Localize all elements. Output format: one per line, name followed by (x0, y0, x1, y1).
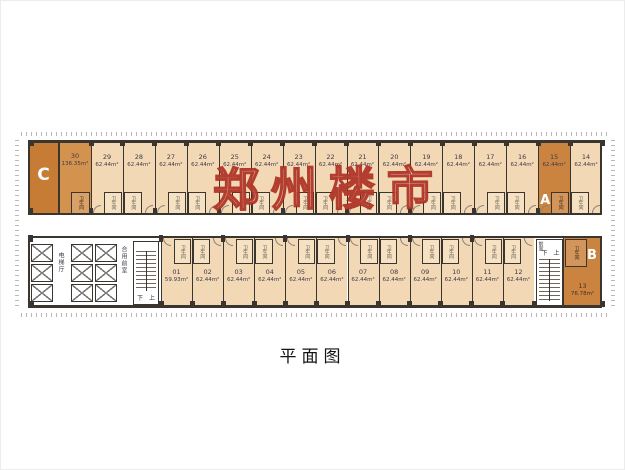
bathroom-label: 卫生间 (258, 196, 263, 210)
bathroom: 卫生间 (379, 192, 397, 214)
column-block (120, 140, 125, 146)
unit-area: 62.44m² (89, 162, 125, 168)
stair-divider (549, 259, 550, 301)
column-block (221, 235, 225, 242)
column-block (472, 208, 476, 215)
column-block (28, 208, 33, 215)
bathroom-label: 卫生间 (366, 196, 371, 210)
stair-up-label: 上 (551, 248, 562, 257)
bathroom-label: 卫生间 (180, 245, 185, 259)
column-block (28, 301, 34, 307)
unit-number: 03 (223, 268, 254, 276)
unit-number: 09 (410, 268, 441, 276)
dimension-ticks-bottom (21, 313, 609, 317)
bathroom-label: 卫生间 (130, 196, 135, 210)
unit-number: 01 (161, 268, 192, 276)
unit-number: 16 (506, 153, 538, 161)
column-block (152, 140, 157, 146)
unit-area: 62.44m² (377, 277, 412, 283)
unit-area: 62.44m² (408, 162, 444, 168)
bathroom: 卫生间 (317, 239, 334, 264)
column-block (221, 301, 226, 307)
unit-number: 25 (219, 153, 251, 161)
bathroom-label: 卫生间 (574, 246, 579, 260)
unit-area: 62.44m² (190, 277, 225, 283)
column-block (407, 301, 412, 307)
unit-area: 62.44m² (440, 162, 476, 168)
unit-area: 62.44m² (283, 277, 318, 283)
unit-area: 62.44m² (346, 277, 381, 283)
bathroom: 卫生间 (443, 192, 461, 214)
column-block (345, 301, 350, 307)
column-block (216, 140, 221, 146)
unit-number: 13 (563, 282, 602, 290)
unit-number: 08 (379, 268, 410, 276)
bathroom-label: 卫生间 (238, 196, 243, 210)
bathroom: 卫生间 (504, 239, 521, 264)
unit-number: 04 (254, 268, 285, 276)
stair-divider (146, 251, 147, 291)
elevator-hall-label: 电梯厅 (56, 252, 65, 292)
bathroom: 卫生间 (571, 192, 589, 214)
unit-area: 62.44m² (121, 162, 157, 168)
unit-number: 05 (285, 268, 316, 276)
bathroom-label: 卫生间 (261, 245, 266, 259)
bathroom: 卫生间 (380, 239, 397, 264)
bathroom-label: 卫生间 (578, 196, 583, 210)
column-block (28, 140, 34, 146)
unit-number: 29 (91, 153, 123, 161)
bathroom: 卫生间 (255, 239, 272, 264)
bathroom-label: 卫生间 (302, 196, 307, 210)
column-block (159, 301, 164, 307)
bathroom-label: 卫生间 (514, 196, 519, 210)
unit-letter: B (587, 248, 597, 263)
column-block (470, 235, 474, 242)
bathroom-label: 卫生间 (386, 196, 391, 210)
unit-area: 62.44m² (217, 162, 253, 168)
unit-number: 15 (538, 153, 570, 161)
floor-plan-page: C30136.35m²卫生间2962.44m²卫生间2862.44m²卫生间27… (0, 0, 625, 470)
unit-number: 07 (348, 268, 379, 276)
column-block (376, 301, 381, 307)
unit-area: 62.44m² (153, 162, 189, 168)
bathroom-label: 卫生间 (430, 196, 435, 210)
column-block (89, 208, 93, 215)
elevator-shaft (71, 244, 93, 262)
column-block (376, 140, 381, 146)
unit-area: 59.93m² (159, 277, 194, 283)
elevator-shaft (95, 244, 117, 262)
column-block (568, 140, 573, 146)
bathroom: 卫生间 (316, 192, 334, 214)
unit-area: 62.44m² (281, 162, 317, 168)
bathroom: 卫生间 (296, 192, 314, 214)
bathroom-label: 卫生间 (78, 196, 83, 210)
bathroom-label: 卫生间 (366, 245, 371, 259)
unit-number: 23 (283, 153, 315, 161)
dimension-ticks-left (15, 140, 19, 310)
bathroom: 卫生间 (485, 239, 502, 264)
unit-number: 18 (442, 153, 474, 161)
bathroom-label: 卫生间 (242, 245, 247, 259)
unit-number: 20 (378, 153, 410, 161)
unit-number: 19 (410, 153, 442, 161)
column-block (280, 140, 285, 146)
door-arc (400, 205, 408, 213)
plan-caption: 平面图 (1, 342, 624, 367)
shared-front-room-label: 合用前室 (119, 246, 128, 298)
column-block (159, 235, 163, 242)
bathroom-label: 卫生间 (510, 245, 515, 259)
unit-number: 17 (474, 153, 506, 161)
column-block (504, 140, 509, 146)
unit-area: 62.44m² (470, 277, 505, 283)
bathroom: 卫生间 (360, 239, 377, 264)
unit-area: 62.44m² (439, 277, 474, 283)
bathroom-label: 卫生间 (494, 196, 499, 210)
column-block (314, 301, 319, 307)
bathroom: 卫生间 (423, 192, 441, 214)
column-block (345, 208, 349, 215)
column-block (536, 208, 540, 215)
column-block (190, 301, 195, 307)
bathroom-label: 卫生间 (386, 245, 391, 259)
door-arc (412, 205, 420, 213)
bathroom-label: 卫生间 (448, 245, 453, 259)
column-block (346, 235, 350, 242)
unit-number: 06 (316, 268, 347, 276)
unit-area: 62.44m² (472, 162, 508, 168)
column-block (28, 235, 33, 242)
bathroom: 卫生间 (360, 192, 378, 214)
bathroom: 卫生间 (188, 192, 206, 214)
column-block (89, 140, 94, 146)
column-block (283, 301, 288, 307)
column-block (153, 208, 157, 215)
column-block (184, 140, 189, 146)
unit-letter: A (540, 193, 550, 208)
unit-number: 12 (503, 268, 534, 276)
bathroom: 卫生间 (507, 192, 525, 214)
bathroom-label: 卫生间 (491, 245, 496, 259)
column-block (408, 208, 412, 215)
unit-number: 24 (251, 153, 283, 161)
elevator-shaft (71, 264, 93, 282)
unit-area: 62.44m² (221, 277, 256, 283)
bathroom-label: 卫生间 (199, 245, 204, 259)
unit-number: 26 (187, 153, 219, 161)
bathroom: 卫生间 (232, 192, 250, 214)
unit-number: 27 (155, 153, 187, 161)
bathroom: 卫生间 (104, 192, 122, 214)
bathroom: 卫生间 (236, 239, 253, 264)
bathroom: 卫生间 (487, 192, 505, 214)
unit-number: 30 (59, 152, 91, 160)
elevator-shaft (31, 284, 53, 302)
unit-area: 62.44m² (408, 277, 443, 283)
elevator-shaft (31, 264, 53, 282)
bathroom-label: 卫生间 (558, 196, 563, 210)
column-block (600, 140, 605, 146)
unit-area: 62.44m² (313, 162, 349, 168)
elevator-shaft (95, 264, 117, 282)
stair-up-label: 上 (146, 293, 158, 302)
unit-area: 76.78m² (561, 291, 604, 297)
bathroom: 卫生间 (422, 239, 439, 264)
column-block (500, 301, 505, 307)
unit-area: 62.44m² (249, 162, 285, 168)
unit-number: 28 (123, 153, 155, 161)
elevator-shaft (95, 284, 117, 302)
stair-down-label: 下 (134, 293, 146, 302)
bathroom: 卫生间 (298, 239, 315, 264)
column-block (312, 140, 317, 146)
bathroom-label: 卫生间 (450, 196, 455, 210)
column-block (536, 140, 541, 146)
column-block (440, 140, 445, 146)
floor-plan: C30136.35m²卫生间2962.44m²卫生间2862.44m²卫生间27… (1, 1, 625, 470)
unit-area: 62.44m² (345, 162, 381, 168)
unit-number: 21 (347, 153, 379, 161)
unit-letter: C (29, 165, 58, 185)
unit-number: 02 (192, 268, 223, 276)
column-block (469, 301, 474, 307)
unit-area: 62.44m² (501, 277, 536, 283)
bathroom: 卫生间 (252, 192, 270, 214)
bathroom: 卫生间 (124, 192, 142, 214)
column-block (408, 235, 412, 242)
column-block (408, 140, 413, 146)
bathroom: 卫生间 (71, 192, 90, 214)
bathroom-label: 卫生间 (322, 196, 327, 210)
column-block (248, 140, 253, 146)
unit-area: 62.44m² (536, 162, 572, 168)
elevator-shaft (31, 244, 53, 262)
column-block (252, 301, 257, 307)
column-block (344, 140, 349, 146)
bathroom-label: 卫生间 (324, 245, 329, 259)
bathroom: 卫生间 (551, 192, 569, 214)
column-block (600, 301, 605, 307)
bathroom: 卫生间 (193, 239, 210, 264)
bathroom: 卫生间 (174, 239, 191, 264)
bathroom-label: 卫生间 (110, 196, 115, 210)
unit-number: 11 (472, 268, 503, 276)
column-block (532, 301, 537, 307)
unit-area: 62.44m² (568, 162, 604, 168)
bathroom-label: 卫生间 (194, 196, 199, 210)
column-block (281, 208, 285, 215)
column-block (438, 301, 443, 307)
unit-number: 22 (315, 153, 347, 161)
column-block (283, 235, 287, 242)
unit-area: 62.44m² (504, 162, 540, 168)
column-block (217, 208, 221, 215)
column-block (472, 140, 477, 146)
unit-area: 62.44m² (185, 162, 221, 168)
stair-down-label: 下 (539, 248, 550, 257)
elevator-shaft (71, 284, 93, 302)
bathroom-label: 卫生间 (174, 196, 179, 210)
dimension-ticks-right (611, 140, 615, 310)
unit-area: 62.44m² (376, 162, 412, 168)
bathroom-label: 卫生间 (429, 245, 434, 259)
dimension-ticks-top (21, 132, 609, 136)
bathroom: 卫生间 (168, 192, 186, 214)
bathroom: 卫生间 (565, 239, 587, 267)
unit-number: 10 (441, 268, 472, 276)
bathroom-label: 卫生间 (304, 245, 309, 259)
unit-number: 14 (570, 153, 602, 161)
unit-area: 62.44m² (252, 277, 287, 283)
unit-area: 62.44m² (314, 277, 349, 283)
bathroom: 卫生间 (442, 239, 459, 264)
